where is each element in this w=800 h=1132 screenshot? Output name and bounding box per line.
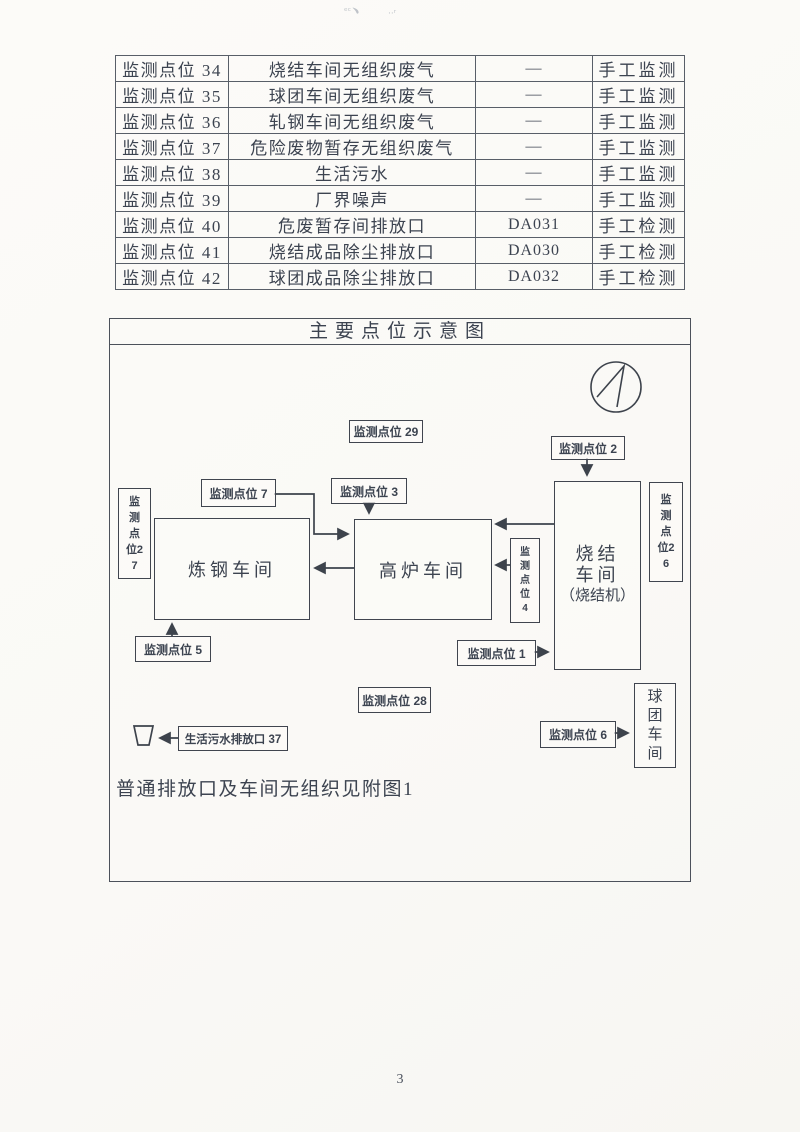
workshop-pelletizing: 球团车间 <box>634 683 676 768</box>
workshop-blast-furnace: 高炉车间 <box>354 519 492 620</box>
label-point-1: 监测点位 1 <box>457 640 536 666</box>
method-cell: 手工检测 <box>593 264 685 290</box>
method-cell: 手工监测 <box>593 108 685 134</box>
workshop-label: 高炉车间 <box>379 557 467 583</box>
point-cell: 监测点位 35 <box>116 82 229 108</box>
label-point-28: 监测点位 28 <box>358 687 431 713</box>
method-cell: 手工监测 <box>593 186 685 212</box>
page-number: 3 <box>0 1072 800 1088</box>
item-cell: 球团车间无组织废气 <box>229 82 476 108</box>
basin-icon <box>134 726 153 745</box>
sintering-line3: （烧结机） <box>560 586 635 607</box>
label-point-27: 监测点位27 <box>118 488 151 579</box>
table-body: 监测点位 34 烧结车间无组织废气 — 手工监测 监测点位 35 球团车间无组织… <box>116 56 685 290</box>
item-cell: 危险废物暂存无组织废气 <box>229 134 476 160</box>
label-point-5: 监测点位 5 <box>135 636 211 662</box>
table-row: 监测点位 34 烧结车间无组织废气 — 手工监测 <box>116 56 685 82</box>
site-schematic-diagram: 主要点位示意图 <box>109 318 691 882</box>
point-cell: 监测点位 38 <box>116 160 229 186</box>
sintering-line2: 车间 <box>560 565 635 586</box>
point-cell: 监测点位 37 <box>116 134 229 160</box>
point-cell: 监测点位 34 <box>116 56 229 82</box>
table-row: 监测点位 37 危险废物暂存无组织废气 — 手工监测 <box>116 134 685 160</box>
label-point-26: 监测点位26 <box>649 482 683 582</box>
outlet-code-cell: — <box>476 134 593 160</box>
scan-speck: ··ʳ <box>388 9 396 19</box>
method-cell: 手工监测 <box>593 56 685 82</box>
item-cell: 危废暂存间排放口 <box>229 212 476 238</box>
outlet-code-cell: DA031 <box>476 212 593 238</box>
item-cell: 烧结成品除尘排放口 <box>229 238 476 264</box>
item-cell: 烧结车间无组织废气 <box>229 56 476 82</box>
label-point-4: 监测点位4 <box>510 538 540 623</box>
method-cell: 手工监测 <box>593 82 685 108</box>
table-row: 监测点位 41 烧结成品除尘排放口 DA030 手工检测 <box>116 238 685 264</box>
point-cell: 监测点位 42 <box>116 264 229 290</box>
label-point-7: 监测点位 7 <box>201 479 276 507</box>
table-row: 监测点位 40 危废暂存间排放口 DA031 手工检测 <box>116 212 685 238</box>
label-text: 监测点位27 <box>125 492 145 576</box>
method-cell: 手工监测 <box>593 134 685 160</box>
label-point-2: 监测点位 2 <box>551 436 625 460</box>
diagram-note: 普通排放口及车间无组织见附图1 <box>116 774 414 801</box>
outlet-code-cell: DA032 <box>476 264 593 290</box>
table-row: 监测点位 36 轧钢车间无组织废气 — 手工监测 <box>116 108 685 134</box>
workshop-label: 球团车间 <box>646 686 664 766</box>
workshop-sintering: 烧结 车间 （烧结机） <box>554 481 641 670</box>
table-row: 监测点位 38 生活污水 — 手工监测 <box>116 160 685 186</box>
outlet-code-cell: — <box>476 82 593 108</box>
workshop-label: 炼钢车间 <box>188 556 276 582</box>
scanned-document-page: ᵉᶜ﹅ ··ʳ 监测点位 34 烧结车间无组织废气 — 手工监测 监测点位 35… <box>0 0 800 1132</box>
method-cell: 手工监测 <box>593 160 685 186</box>
point-cell: 监测点位 36 <box>116 108 229 134</box>
label-point-6: 监测点位 6 <box>540 721 616 748</box>
outlet-code-cell: — <box>476 108 593 134</box>
label-text: 监测点位26 <box>656 490 676 574</box>
scan-speck: ᵉᶜ﹅ <box>344 4 360 17</box>
north-arrow-icon <box>591 362 641 412</box>
point-cell: 监测点位 39 <box>116 186 229 212</box>
sintering-line1: 烧结 <box>560 544 635 565</box>
outlet-code-cell: — <box>476 160 593 186</box>
point-cell: 监测点位 41 <box>116 238 229 264</box>
item-cell: 球团成品除尘排放口 <box>229 264 476 290</box>
item-cell: 厂界噪声 <box>229 186 476 212</box>
point-cell: 监测点位 40 <box>116 212 229 238</box>
method-cell: 手工检测 <box>593 238 685 264</box>
monitoring-points-table: 监测点位 34 烧结车间无组织废气 — 手工监测 监测点位 35 球团车间无组织… <box>115 55 685 290</box>
label-sewage-outlet-37: 生活污水排放口 37 <box>178 726 288 751</box>
outlet-code-cell: DA030 <box>476 238 593 264</box>
label-point-29: 监测点位 29 <box>349 420 423 443</box>
item-cell: 生活污水 <box>229 160 476 186</box>
outlet-code-cell: — <box>476 186 593 212</box>
table-row: 监测点位 39 厂界噪声 — 手工监测 <box>116 186 685 212</box>
outlet-code-cell: — <box>476 56 593 82</box>
item-cell: 轧钢车间无组织废气 <box>229 108 476 134</box>
method-cell: 手工检测 <box>593 212 685 238</box>
label-text: 监测点位4 <box>518 544 532 618</box>
workshop-steelmaking: 炼钢车间 <box>154 518 310 620</box>
table-row: 监测点位 42 球团成品除尘排放口 DA032 手工检测 <box>116 264 685 290</box>
table-row: 监测点位 35 球团车间无组织废气 — 手工监测 <box>116 82 685 108</box>
workshop-label: 烧结 车间 （烧结机） <box>560 544 635 607</box>
label-point-3: 监测点位 3 <box>331 478 407 504</box>
